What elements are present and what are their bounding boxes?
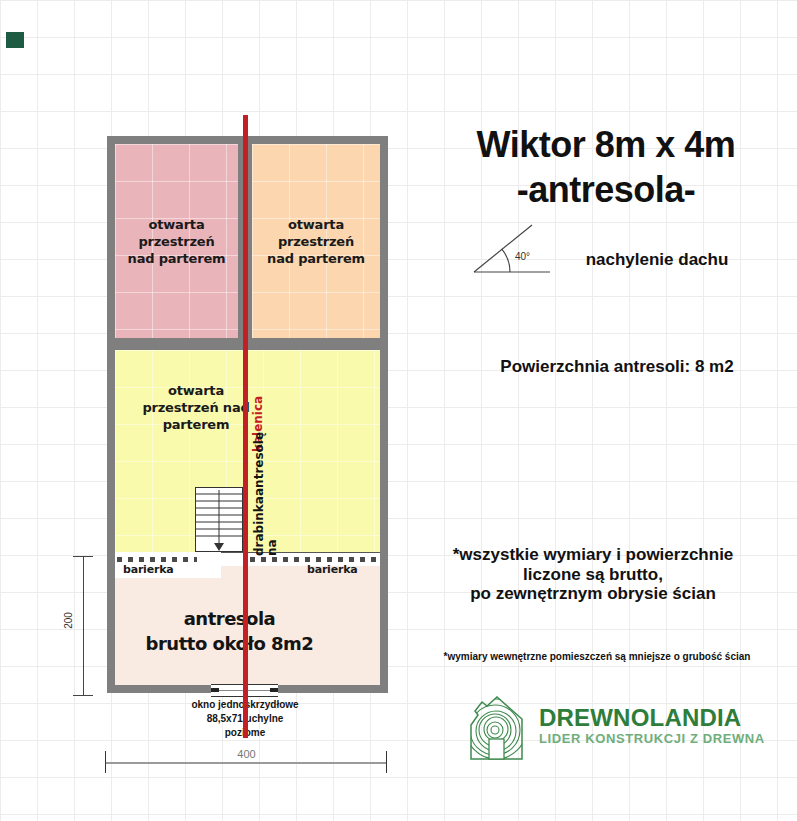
dimension-value-vertical: 200 <box>63 612 74 629</box>
dimension-tick-top <box>73 556 93 557</box>
roof-angle-value: 40° <box>515 251 530 262</box>
logo-tagline: LIDER KONSTRUKCJI Z DREWNA <box>539 731 765 746</box>
dimensions-note: *wszystkie wymiary i powierzchnie liczon… <box>428 545 758 604</box>
dimension-line-vertical <box>83 556 84 696</box>
dimensions-note-line2: liczone są brutto, <box>428 565 758 585</box>
roof-pitch-icon: 40° <box>462 216 562 280</box>
room-open-space-top-right: otwarta przestrzeń nad parterem <box>252 144 380 338</box>
drewnolandia-logo-icon <box>466 693 528 763</box>
corner-mark <box>6 32 24 48</box>
ridge-line <box>243 115 248 738</box>
window-end-right <box>270 688 278 692</box>
mezzanine-label: antresola brutto około 8m2 <box>122 606 337 656</box>
mezzanine-area-note: Powierzchnia antresoli: 8 m2 <box>442 357 792 377</box>
railing-left <box>117 557 197 562</box>
roof-pitch-caption: nachylenie dachu <box>567 250 747 270</box>
dimension-line-horizontal <box>106 762 387 764</box>
ladder-icon <box>195 487 243 552</box>
mezzanine-label-line1: antresola <box>122 606 337 631</box>
dimension-value-horizontal: 400 <box>106 748 387 760</box>
barrier-label-left: barierka <box>123 563 174 576</box>
ladder-label-line1: drabinka na <box>253 496 279 556</box>
dimensions-note-line1: *wszystkie wymiary i powierzchnie <box>428 545 758 565</box>
ladder-label-line2: antresolę <box>253 432 279 496</box>
room-label: otwarta przestrzeń nad parterem <box>127 216 227 267</box>
room-label: otwarta przestrzeń nad parterem <box>266 216 366 267</box>
logo-name: DREWNOLANDIA <box>539 704 741 732</box>
mezzanine-label-line2: brutto około 8m2 <box>122 631 337 656</box>
room-open-space-top-left: otwarta przestrzeń nad parterem <box>115 144 238 338</box>
room-label: otwarta przestrzeń nad parterem <box>140 382 252 433</box>
ladder-to-mezzanine <box>195 487 243 552</box>
dimension-tick-bottom <box>73 695 93 696</box>
page-title-line1: Wiktor 8m x 4m <box>436 122 776 167</box>
ladder-label: drabinka na antresolę <box>253 470 279 556</box>
dimensions-footnote: *wymiary wewnętrzne pomieszczeń są mniej… <box>427 651 767 662</box>
dimensions-note-line3: po zewnętrznym obrysie ścian <box>428 584 758 604</box>
page-title-line2: -antresola- <box>436 167 776 212</box>
window-end-left <box>211 688 219 692</box>
plan-sheet: otwarta przestrzeń nad parterem otwarta … <box>0 0 797 821</box>
page-title: Wiktor 8m x 4m -antresola- <box>436 122 776 212</box>
railing-right <box>250 557 378 562</box>
barrier-label-right: barierka <box>307 563 358 576</box>
